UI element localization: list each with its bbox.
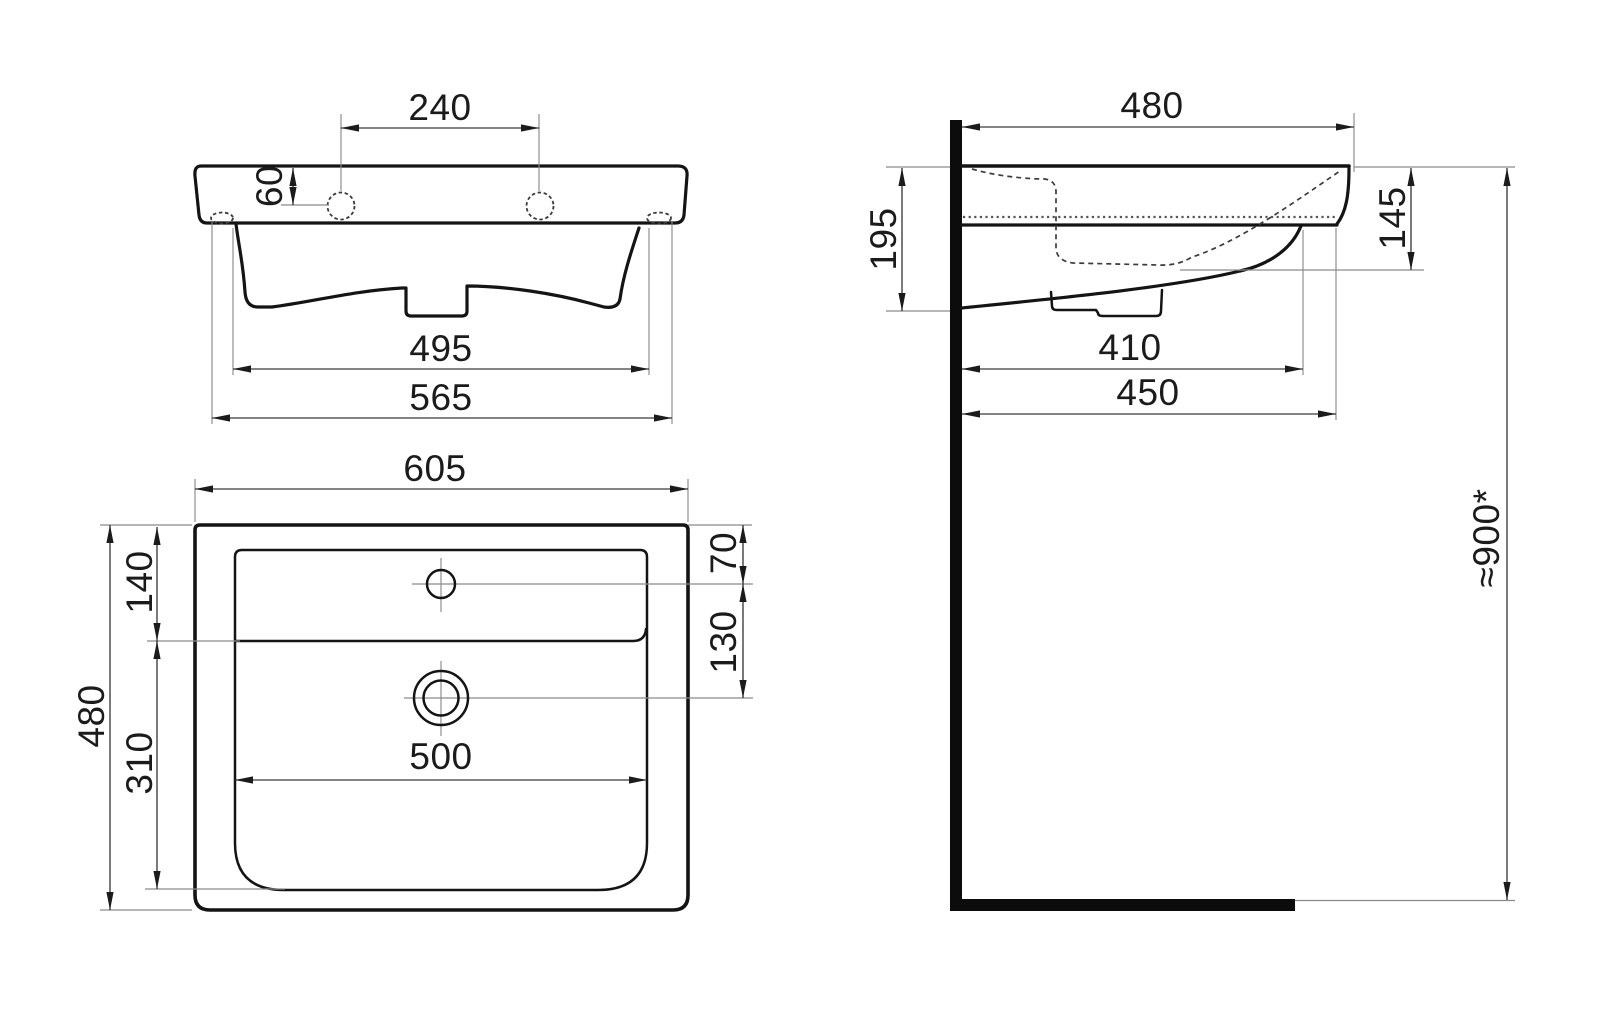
dimension-value: 140 [119, 550, 160, 613]
arrowhead-down [153, 623, 160, 641]
dimensions-layer: 24060495565480195145410450≈900*605480140… [71, 85, 1515, 910]
dim-side-back-height: 195 [863, 167, 950, 311]
dimension-value: 480 [71, 684, 112, 747]
faucet-hole-right [527, 193, 554, 220]
arrowhead-left [233, 365, 251, 372]
dim-plan-hole-offset: 70 [688, 525, 752, 584]
technical-drawing-page: 24060495565480195145410450≈900*605480140… [0, 0, 1600, 1016]
washbasin-drawing-canvas: 24060495565480195145410450≈900*605480140… [0, 0, 1600, 1016]
pedestal-outline [236, 224, 639, 316]
dimension-value: 410 [1098, 327, 1161, 368]
dimension-value: 195 [863, 207, 904, 270]
dim-side-lower-depth: 450 [962, 228, 1336, 420]
arrowhead-left [962, 410, 980, 417]
dimension-value: 70 [703, 532, 744, 574]
arrowhead-left [235, 776, 253, 783]
dimension-value: 310 [119, 731, 160, 794]
dim-plan-hole-to-drain: 130 [703, 584, 747, 698]
faucet-hole-left [328, 193, 355, 220]
basin-front-face [1337, 168, 1349, 224]
dim-plan-bowl-width: 500 [235, 736, 647, 784]
arrowhead-right [654, 414, 672, 421]
dim-front-hole-spacing: 240 [341, 87, 539, 191]
arrowhead-down [153, 871, 160, 889]
arrowhead-up [898, 168, 905, 186]
dim-front-hole-height: 60 [249, 165, 329, 207]
dim-front-bottom-width: 565 [212, 222, 672, 424]
arrowhead-right [1336, 123, 1354, 130]
dimension-value: 495 [409, 328, 472, 369]
arrowhead-right [1318, 410, 1336, 417]
dim-plan-width: 605 [195, 448, 688, 522]
dimension-value: 480 [1120, 85, 1183, 126]
dimension-value: 145 [1372, 186, 1413, 249]
dimension-value: 450 [1116, 372, 1179, 413]
dimension-value: ≈900* [1466, 489, 1507, 588]
dimension-value: 500 [409, 736, 472, 777]
arrowhead-left [195, 485, 213, 492]
arrowhead-up [106, 525, 113, 543]
arrowhead-up [1503, 168, 1510, 186]
dim-side-install-height: ≈900* [1466, 168, 1511, 900]
dim-plan-bowl-depth: 310 [119, 641, 285, 889]
arrowhead-right [629, 776, 647, 783]
dimension-value: 240 [408, 87, 471, 128]
dim-plan-deck-depth: 140 [119, 527, 240, 641]
arrowhead-left [962, 365, 980, 372]
arrowhead-down [106, 892, 113, 910]
arrowhead-up [739, 584, 746, 602]
deck-edge [235, 629, 646, 641]
arrowhead-up [289, 168, 296, 186]
arrowhead-right [631, 365, 649, 372]
basin-underside [962, 226, 1301, 308]
dim-side-depth: 480 [962, 85, 1354, 172]
arrowhead-right [521, 124, 539, 131]
arrowhead-left [212, 414, 230, 421]
arrowhead-right [1285, 365, 1303, 372]
arrowhead-down [898, 293, 905, 311]
wall-section [950, 120, 1295, 911]
dimension-value: 565 [409, 377, 472, 418]
arrowhead-left [341, 124, 359, 131]
arrowhead-down [289, 187, 296, 205]
side-view [950, 120, 1515, 911]
arrowhead-right [670, 485, 688, 492]
arrowhead-up [153, 527, 160, 545]
arrowhead-up [1407, 168, 1414, 186]
dimension-value: 605 [403, 448, 466, 489]
plan-view [195, 525, 753, 910]
dimension-value: 60 [249, 165, 290, 207]
arrowhead-up [153, 641, 160, 659]
arrowhead-down [739, 680, 746, 698]
arrowhead-down [1503, 882, 1510, 900]
arrowhead-left [962, 123, 980, 130]
dimension-value: 130 [703, 610, 744, 673]
arrowhead-down [1407, 252, 1414, 270]
